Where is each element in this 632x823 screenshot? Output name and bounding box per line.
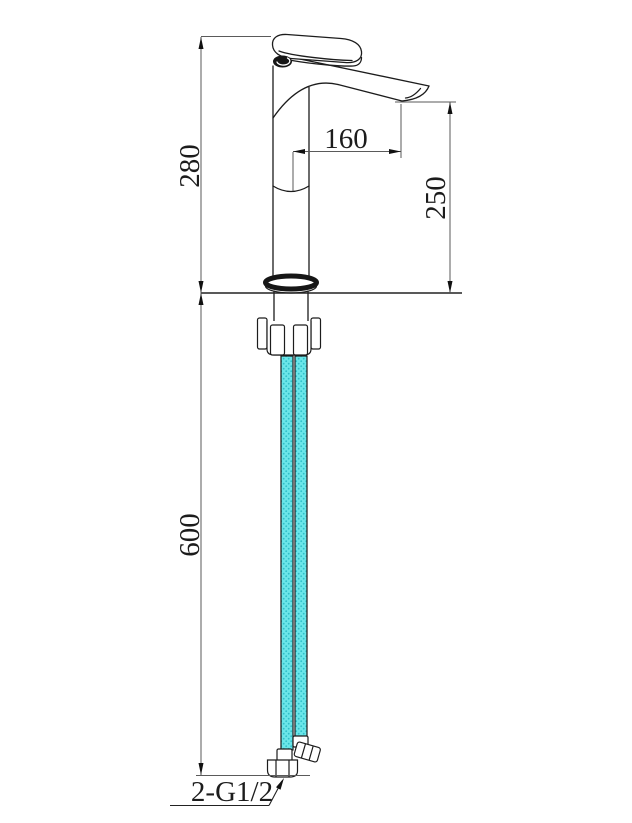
dimension-spout-height-label: 250	[420, 176, 452, 220]
mounting-flange	[266, 276, 317, 293]
hose-fitting-left	[268, 749, 298, 777]
hose-fitting-right	[293, 736, 321, 763]
shank	[274, 291, 308, 325]
dimension-hose-length-label: 600	[174, 513, 206, 557]
technical-drawing: 280 600 160	[0, 0, 632, 823]
mounting-nut	[258, 318, 321, 355]
supply-hose-left	[281, 356, 293, 750]
thread-callout-label: 2-G1/2	[191, 776, 273, 808]
dimension-spout-reach-label: 160	[324, 123, 368, 155]
drawing-canvas: 280 600 160	[0, 0, 632, 823]
dimension-overall-height-label: 280	[174, 144, 206, 188]
dimension-overall-height: 280	[174, 37, 271, 294]
thread-callout-arrow	[276, 778, 284, 790]
thread-callout: 2-G1/2	[170, 776, 284, 808]
supply-hoses	[268, 356, 321, 777]
faucet	[258, 34, 430, 355]
supply-hose-right	[295, 356, 307, 737]
dimension-spout-height: 250	[395, 102, 456, 293]
